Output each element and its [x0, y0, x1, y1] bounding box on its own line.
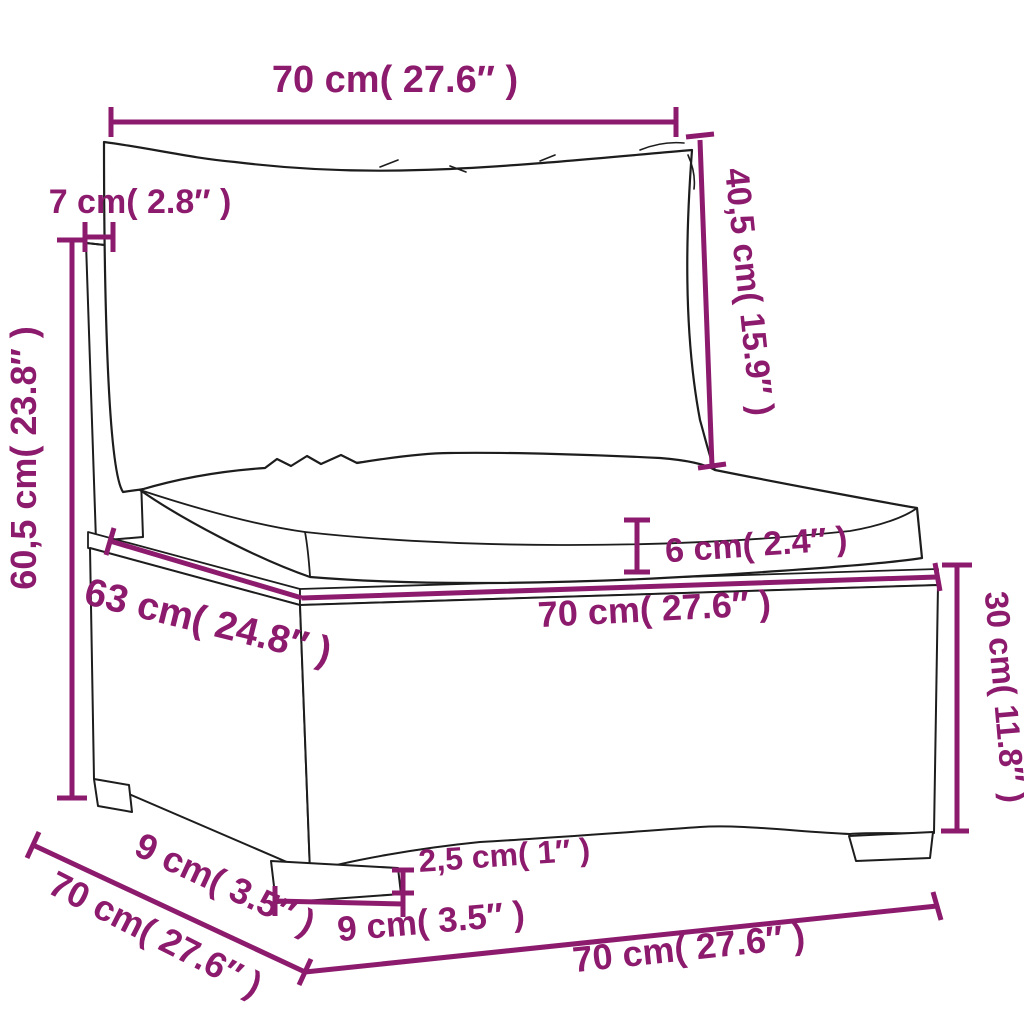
- seat-cushion: [140, 453, 922, 583]
- dimension-diagram: 70 cm( 27.6″ ) 7 cm( 2.8″ ) 40,5 cm( 15.…: [0, 0, 1024, 1024]
- label-back-width: 70 cm( 27.6″ ): [272, 59, 518, 101]
- label-back-thickness: 7 cm( 2.8″ ): [49, 183, 232, 221]
- dim-line-total-height: [57, 240, 87, 798]
- label-total-height: 60,5 cm( 23.8″ ): [3, 326, 44, 589]
- foot-front-right: [849, 832, 933, 861]
- label-base-height: 30 cm( 11.8″ ): [978, 590, 1024, 805]
- foot-back-left: [94, 779, 132, 812]
- label-back-cushion-height: 40,5 cm( 15.9″ ): [717, 166, 781, 417]
- sofa-dimension-drawing: 70 cm( 27.6″ ) 7 cm( 2.8″ ) 40,5 cm( 15.…: [0, 0, 1024, 1024]
- dim-line-back-width: [111, 107, 676, 137]
- dim-line-base-height: [941, 565, 972, 831]
- label-front-bottom-width: 70 cm( 27.6″ ): [571, 915, 807, 980]
